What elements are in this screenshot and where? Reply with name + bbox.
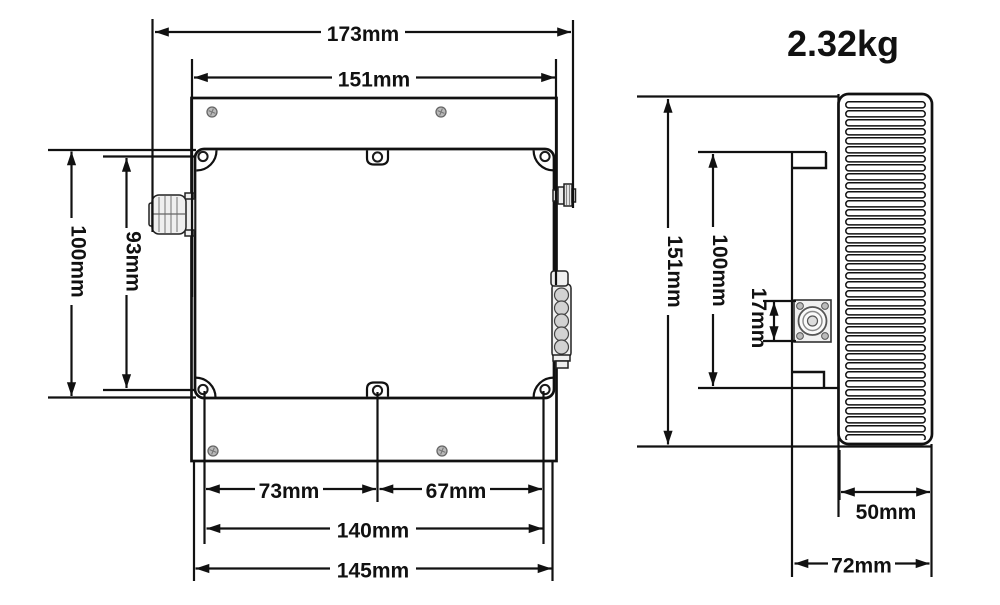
- dim-label-hole-vspan: 93mm: [122, 231, 145, 292]
- dim-label-body-width: 145mm: [337, 560, 409, 583]
- side-connector-pin: [808, 316, 818, 326]
- dsub-bump: [555, 327, 569, 341]
- dim-label-heatsink-depth: 50mm: [856, 501, 917, 524]
- side-connector-screw: [797, 303, 804, 310]
- mount-hole-top-right: [540, 152, 549, 161]
- flange-screw-top-right: [436, 107, 446, 117]
- side-step-top: [792, 152, 826, 168]
- dim-label-connector-height: 17mm: [747, 288, 770, 349]
- dim-label-hole-hspan: 140mm: [337, 520, 409, 543]
- flange-screw-bottom-right: [437, 446, 447, 456]
- side-connector-screw: [797, 333, 804, 340]
- dsub-bump: [555, 301, 569, 315]
- module-body: [195, 149, 554, 398]
- dsub-bump: [555, 314, 569, 328]
- dsub-bump: [555, 340, 569, 354]
- weight-label: 2.32kg: [787, 23, 899, 64]
- drawing-svg: 173mm 151mm 100mm 93mm 73mm 67mm 140mm 1…: [0, 0, 1000, 605]
- dsub-bump: [555, 288, 569, 302]
- dim-label-overall-width: 173mm: [327, 23, 399, 46]
- dim-label-hole-left-offset: 73mm: [259, 480, 320, 503]
- side-connector-screw: [822, 303, 829, 310]
- side-step-bottom: [792, 372, 824, 388]
- mount-hole-top-left: [198, 152, 207, 161]
- dsub-top-cap: [551, 271, 568, 286]
- top-view: 173mm 151mm 100mm 93mm 73mm 67mm 140mm 1…: [48, 19, 576, 583]
- rf-connector-side: [794, 300, 831, 342]
- side-view: 2.32kg 151mm: [637, 23, 932, 578]
- rf-connector-left: [149, 193, 195, 236]
- dim-label-side-body-height: 100mm: [708, 234, 731, 306]
- dim-label-side-total-height: 151mm: [663, 235, 686, 307]
- dim-label-overall-height: 100mm: [67, 225, 90, 297]
- side-connector-screw: [822, 333, 829, 340]
- sma-nut: [564, 184, 572, 206]
- dim-label-total-depth: 72mm: [831, 555, 892, 578]
- dimension-drawing: 173mm 151mm 100mm 93mm 73mm 67mm 140mm 1…: [0, 0, 1000, 605]
- mount-hole-bottom-right: [540, 385, 549, 394]
- center-tab-top-hole: [373, 152, 382, 161]
- dim-label-hole-right-offset: 67mm: [426, 480, 487, 503]
- flange-screw-bottom-left: [208, 446, 218, 456]
- dim-label-flange-width: 151mm: [338, 69, 410, 92]
- flange-screw-top-left: [207, 107, 217, 117]
- heatsink-fins: [845, 101, 926, 440]
- mount-hole-bottom-left: [198, 385, 207, 394]
- sma-body: [558, 187, 564, 204]
- dsub-bottom-step: [553, 355, 570, 361]
- dsub-bottom-tab: [556, 361, 568, 368]
- dsub-connector-right: [551, 271, 571, 368]
